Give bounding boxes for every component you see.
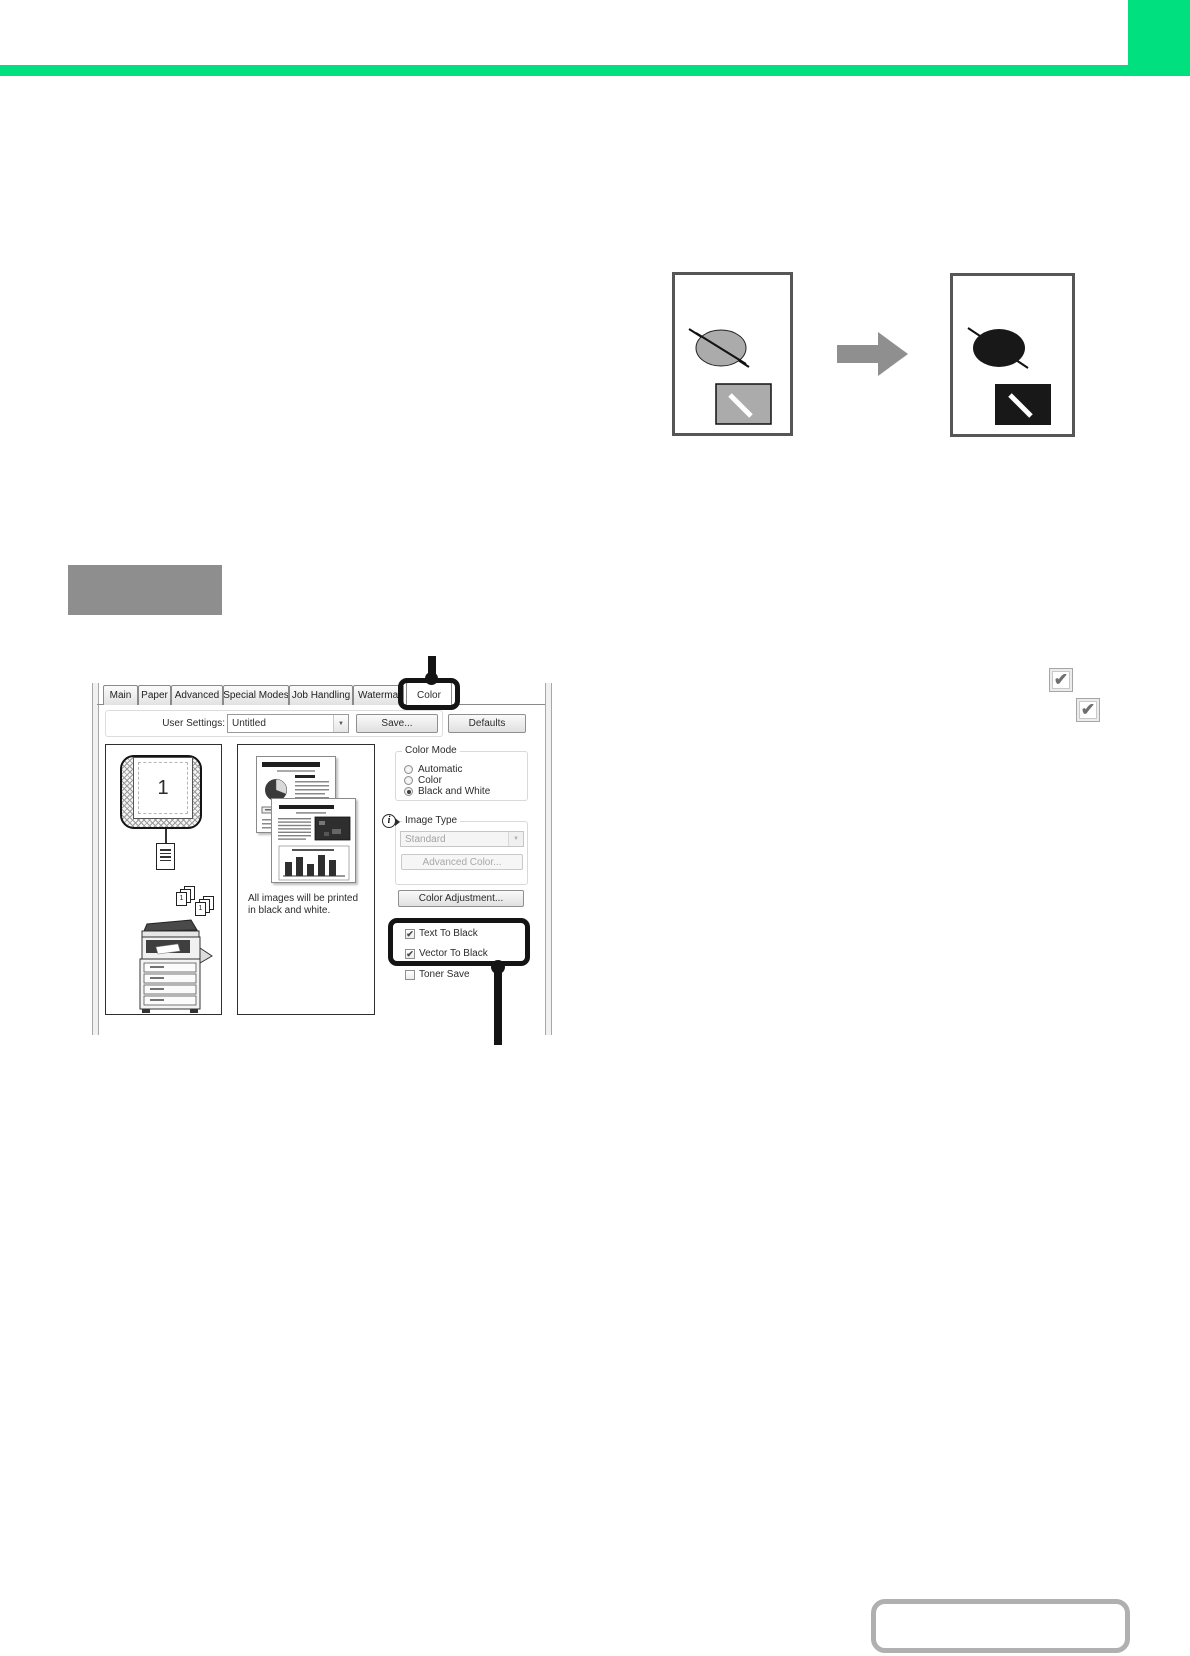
color-mode-group-label: Color Mode (402, 746, 460, 756)
tab-main-label: Main (110, 690, 132, 701)
color-adjustment-button[interactable]: Color Adjustment... (398, 890, 524, 907)
preview-message: All images will be printed in black and … (248, 893, 360, 917)
user-settings-value: Untitled (228, 718, 333, 729)
user-settings-dropdown[interactable]: Untitled ▼ (227, 714, 349, 733)
black-ellipse (973, 329, 1025, 367)
radio-automatic-label: Automatic (418, 764, 462, 775)
check-icon: ✔ (1081, 700, 1095, 720)
tab-paper-label: Paper (141, 690, 168, 701)
print-preview-panel: All images will be printed in black and … (237, 744, 375, 1015)
radio-color[interactable] (404, 776, 413, 785)
tab-watermarks[interactable]: Watermarks (353, 685, 404, 705)
check-icon: ✔ (1054, 670, 1068, 690)
checkbox-toner-save-label: Toner Save (419, 969, 470, 980)
advanced-color-button-label: Advanced Color... (423, 857, 502, 868)
page-number: 1 (157, 777, 168, 800)
before-page-figure (672, 272, 793, 436)
printer-icon (130, 918, 214, 1014)
preview-front-page-content (272, 799, 355, 882)
window-left-edge (92, 683, 99, 1035)
manual-page: Main Paper Advanced Special Modes Job Ha… (0, 0, 1190, 1656)
document-icon (156, 843, 175, 870)
before-page-graphics (675, 275, 790, 433)
black-options-callout-line (494, 966, 502, 1045)
checkbox-toner-save[interactable] (405, 970, 415, 980)
radio-black-and-white-label: Black and White (418, 786, 490, 797)
gray-rect (716, 384, 771, 424)
dropdown-arrow-icon: ▼ (508, 832, 523, 846)
user-settings-label: User Settings: (148, 718, 225, 729)
image-type-value: Standard (401, 834, 508, 845)
radio-black-and-white[interactable] (404, 787, 413, 796)
tab-paper[interactable]: Paper (138, 685, 171, 705)
tab-main[interactable]: Main (103, 685, 138, 705)
color-adjustment-button-label: Color Adjustment... (419, 893, 503, 904)
defaults-button[interactable]: Defaults (448, 714, 526, 733)
printer-driver-dialog: Main Paper Advanced Special Modes Job Ha… (88, 648, 554, 1050)
window-right-edge (545, 683, 552, 1035)
tab-special-modes[interactable]: Special Modes (223, 685, 289, 705)
after-page-figure (950, 273, 1075, 437)
settings-preview-panel: 1 3 2 1 3 2 1 (105, 744, 222, 1015)
collate-page-1: 1 (176, 892, 187, 906)
transform-arrow-icon (837, 345, 879, 363)
info-icon: i (382, 814, 396, 828)
black-options-callout (388, 918, 530, 966)
checked-checkbox-icon: ✔ (1049, 668, 1073, 692)
after-page-graphics (953, 276, 1072, 434)
info-icon-glyph: i (388, 815, 391, 826)
radio-automatic[interactable] (404, 765, 413, 774)
black-options-callout-dot (491, 960, 505, 974)
section-label-box (68, 565, 222, 615)
tab-special-modes-label: Special Modes (223, 690, 289, 701)
color-tab-callout-dot (425, 672, 438, 685)
image-type-group-label: Image Type (402, 816, 460, 826)
tab-advanced-label: Advanced (175, 690, 219, 701)
defaults-button-label: Defaults (469, 718, 506, 729)
dropdown-arrow-icon: ▼ (333, 715, 348, 732)
advanced-color-button: Advanced Color... (401, 854, 523, 870)
footer-nav-button[interactable] (871, 1599, 1130, 1653)
preview-connector-line (165, 829, 167, 843)
collate-page-4: 1 (195, 902, 206, 916)
tab-job-handling-label: Job Handling (292, 690, 350, 701)
radio-color-label: Color (418, 775, 442, 786)
green-header-bar (0, 65, 1190, 76)
tab-advanced[interactable]: Advanced (171, 685, 223, 705)
green-corner-block (1128, 0, 1190, 65)
save-button-label: Save... (381, 718, 412, 729)
tab-job-handling[interactable]: Job Handling (289, 685, 353, 705)
collate-pages-icon: 3 2 1 3 2 1 (176, 886, 216, 918)
transform-arrow-head-icon (878, 332, 908, 376)
preview-front-page (271, 798, 356, 883)
image-type-dropdown: Standard ▼ (400, 831, 524, 847)
checked-checkbox-icon: ✔ (1076, 698, 1100, 722)
save-button[interactable]: Save... (356, 714, 438, 733)
layout-preview-page: 1 (133, 757, 193, 819)
